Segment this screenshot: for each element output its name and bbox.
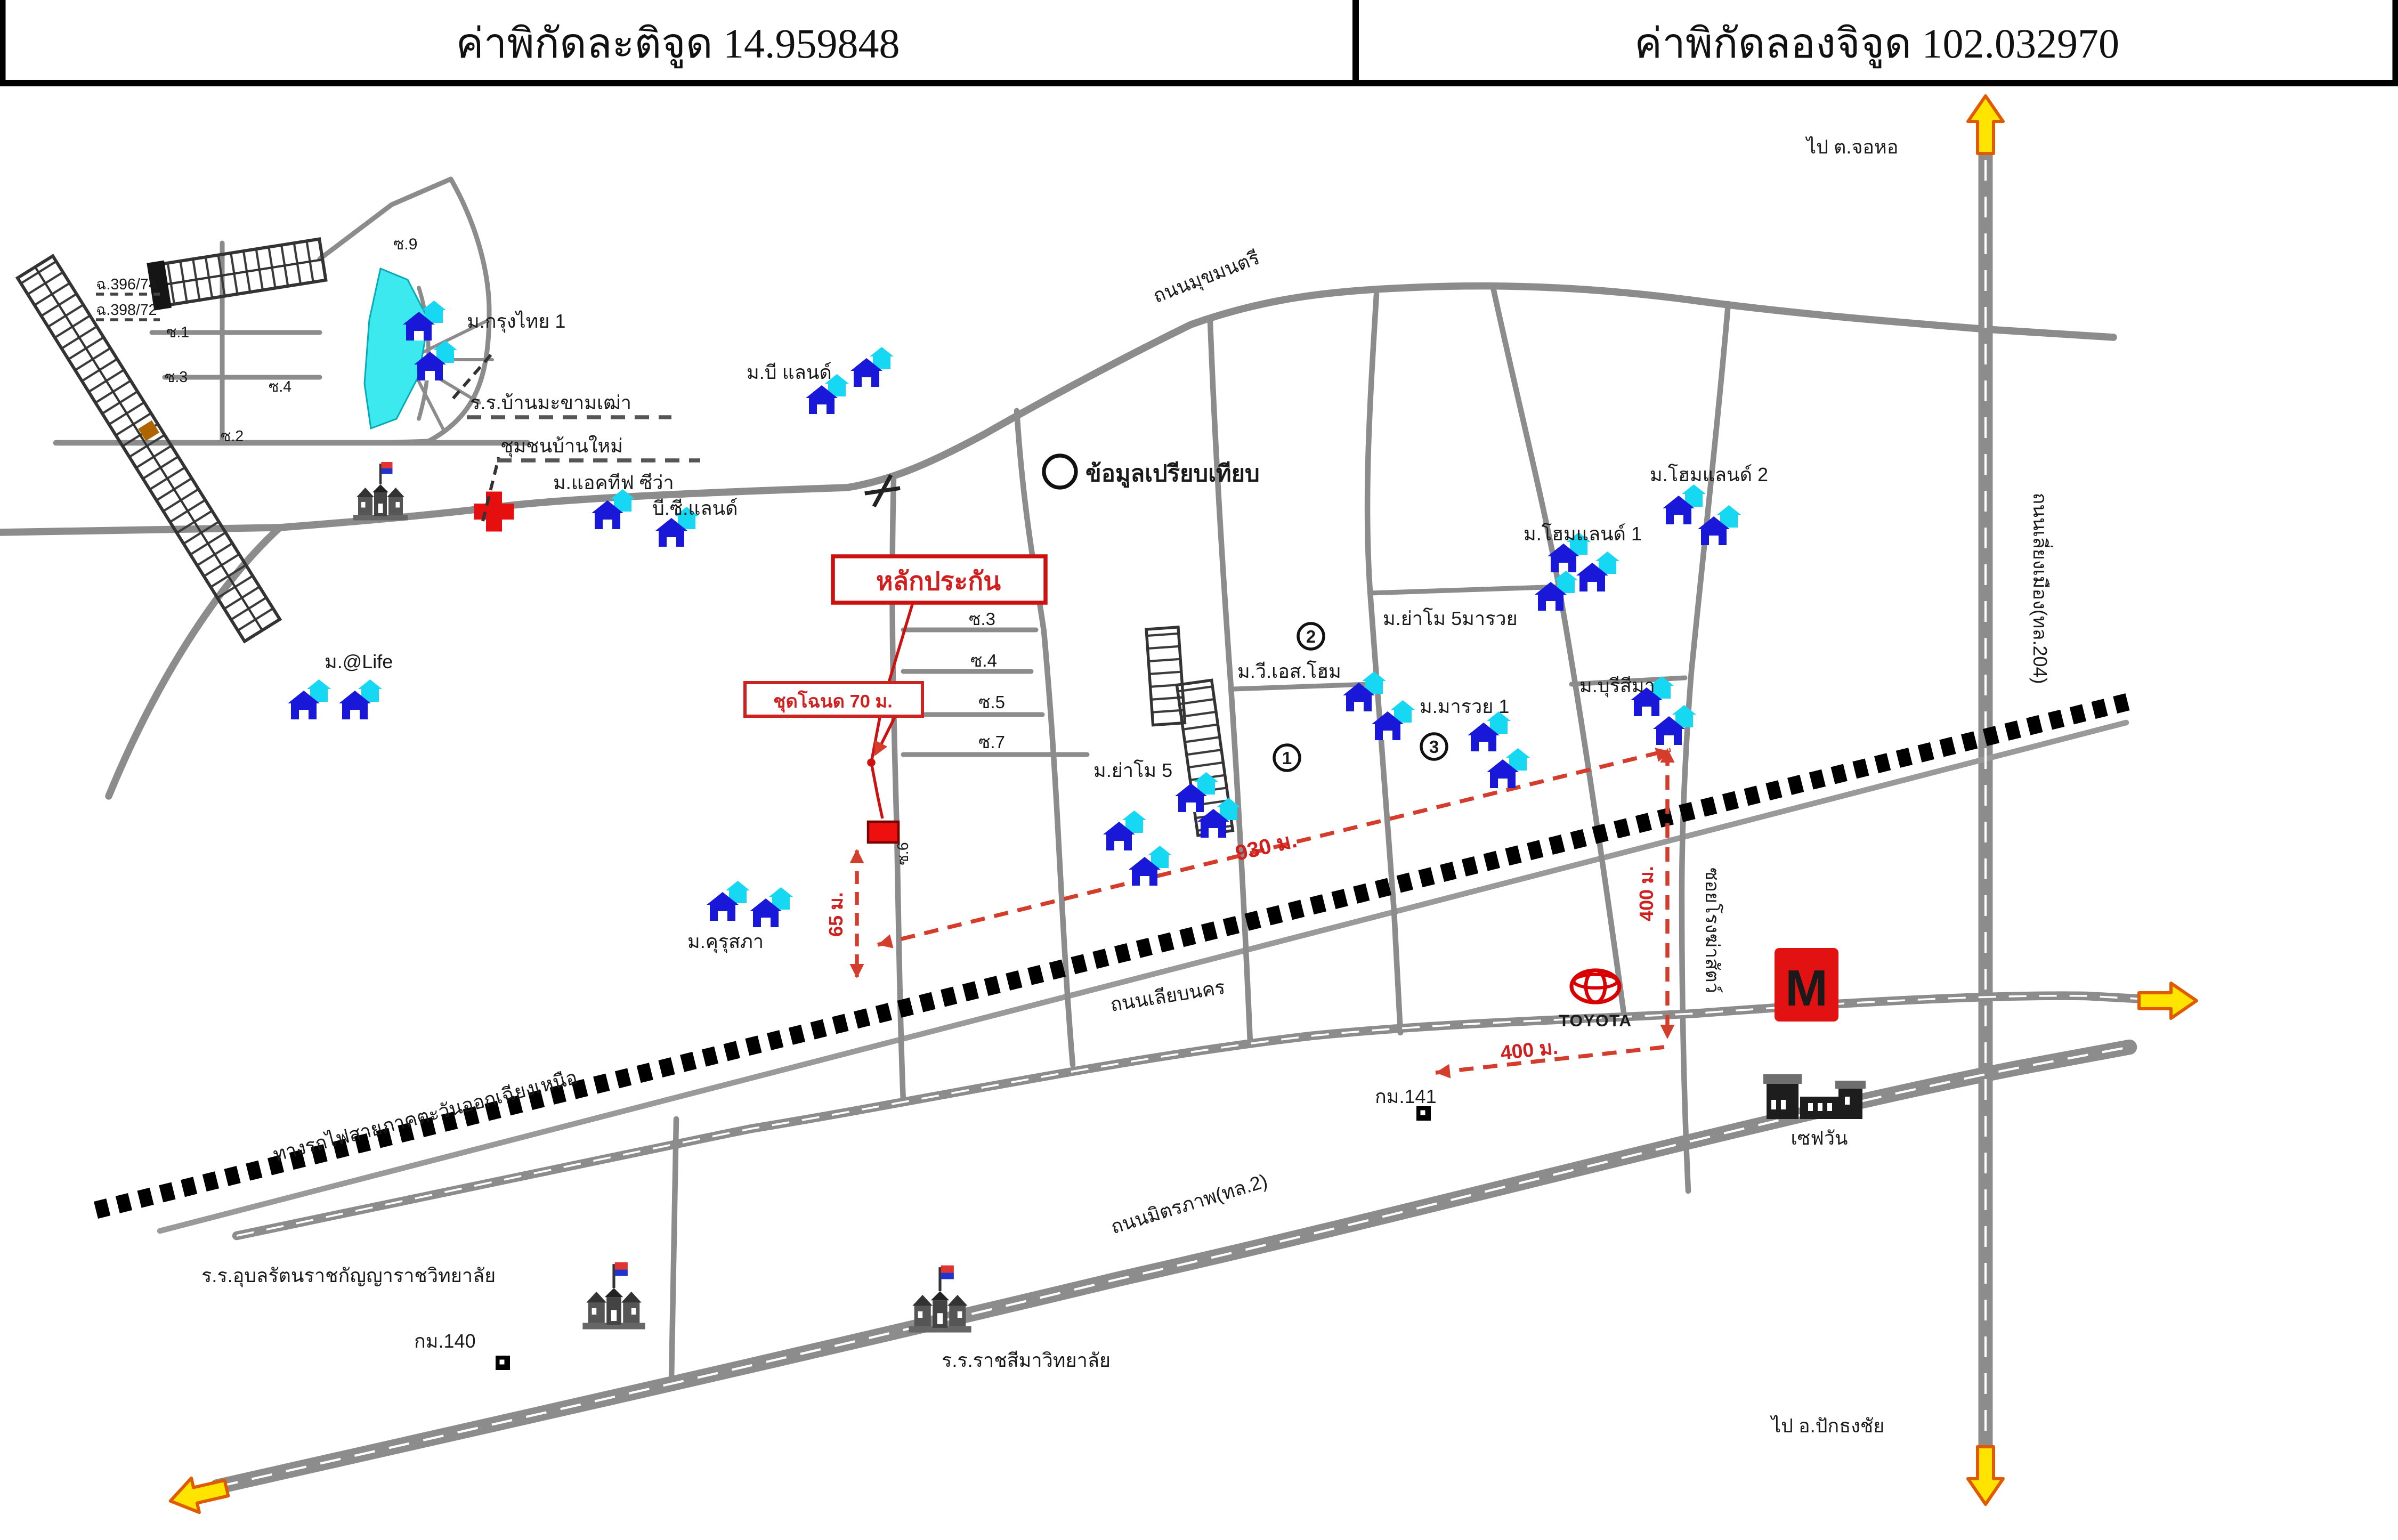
soi-3b: ซ.3 bbox=[165, 369, 188, 386]
village-kurusapha: ม.คุรุสภา bbox=[687, 930, 764, 953]
railway-label: ทางรถไฟสายภาคตะวันออกเฉียงเหนือ bbox=[271, 1066, 579, 1165]
soi-3: ซ.3 bbox=[969, 609, 995, 629]
map-page: ค่าพิกัดละติจูด 14.959848 ค่าพิกัดลองจิจ… bbox=[0, 0, 2398, 1539]
village-b-land: ม.บี แลนด์ bbox=[747, 361, 832, 383]
circled-3: 3 bbox=[1429, 737, 1439, 757]
village-marui1: ม.มารวย 1 bbox=[1420, 695, 1509, 717]
the-mall-icon: M bbox=[1775, 948, 1838, 1022]
bypass-road-label: ถนนเลี่ยงเมือง(ทล.204) bbox=[2029, 492, 2053, 684]
village-yamo5-marui: ม.ย่าโม 5มารวย bbox=[1383, 607, 1518, 629]
dist-400v-label: 400 ม. bbox=[1635, 866, 1657, 921]
school2-icon bbox=[909, 1266, 971, 1333]
school1-icon bbox=[582, 1262, 645, 1330]
plot-deed1: ฉ.396/74 bbox=[96, 276, 157, 293]
circled-2: 2 bbox=[1306, 627, 1316, 646]
soi-6: ซ.6 bbox=[895, 842, 912, 865]
km141-label: กม.141 bbox=[1375, 1085, 1437, 1107]
longitude-value: ค่าพิกัดลองจิจูด 102.032970 bbox=[1634, 20, 2119, 68]
comparison-label: ข้อมูลเปรียบเทียบ bbox=[1085, 461, 1260, 488]
collateral-label: หลักประกัน bbox=[876, 568, 1001, 596]
arrow-east-icon bbox=[2139, 983, 2197, 1018]
to-johor-label: ไป ต.จอหอ bbox=[1805, 136, 1898, 158]
mukmontri-road bbox=[0, 286, 2113, 532]
school-icon bbox=[353, 462, 408, 521]
arrow-south-icon bbox=[1968, 1447, 2003, 1504]
village-burisima: ม.บุรีสีมา bbox=[1579, 675, 1655, 698]
dist-400h-label: 400 ม. bbox=[1500, 1036, 1559, 1064]
hospital-cross-icon bbox=[474, 492, 514, 532]
village-krungthai1: ม.กรุงไทย 1 bbox=[467, 310, 565, 333]
header-row: ค่าพิกัดละติจูด 14.959848 ค่าพิกัดลองจิจ… bbox=[3, 0, 2396, 83]
save-one-building bbox=[1763, 1074, 1866, 1119]
road-centerlines bbox=[217, 160, 2145, 1487]
soi-4b: ซ.4 bbox=[269, 378, 291, 395]
soi-5: ซ.5 bbox=[978, 692, 1005, 712]
soi-9: ซ.9 bbox=[393, 236, 417, 253]
soi-4: ซ.4 bbox=[970, 651, 997, 670]
west-branch-road bbox=[109, 528, 280, 796]
village-banmakham: ร.ร.บ้านมะขามเฒ่า bbox=[470, 392, 631, 414]
village-at-life: ม.@Life bbox=[325, 651, 393, 672]
save-one-label: เซฟวัน bbox=[1791, 1127, 1848, 1149]
dist-930-label: 930 ม. bbox=[1233, 828, 1299, 865]
road-network bbox=[0, 153, 2145, 1487]
village-yamo5: ม.ย่าโม 5 bbox=[1093, 759, 1172, 781]
village-homeland1: ม.โฮมแลนด์ 1 bbox=[1524, 523, 1642, 545]
school2-label: ร.ร.ราชสีมาวิทยาลัย bbox=[942, 1349, 1111, 1371]
school1-label: ร.ร.อุบลรัตนราชกัญญาราชวิทยาลัย bbox=[201, 1265, 496, 1287]
comparison-legend: ข้อมูลเปรียบเทียบ bbox=[1044, 456, 1260, 488]
deed-note-callout: ชุดโฉนด 70 ม. bbox=[745, 683, 922, 716]
km140-label: กม.140 bbox=[414, 1330, 476, 1352]
arrow-southwest-icon bbox=[166, 1471, 230, 1518]
circled-1: 1 bbox=[1282, 748, 1292, 768]
toyota-label: TOYOTA bbox=[1559, 1011, 1632, 1030]
collateral-callout: หลักประกัน bbox=[833, 556, 1046, 603]
plot-deed2: ฉ.398/72 bbox=[96, 302, 157, 319]
soi-2: ซ.2 bbox=[221, 428, 244, 445]
deed-note-label: ชุดโฉนด 70 ม. bbox=[773, 690, 893, 713]
village-vs-home: ม.วี.เอส.โฮม bbox=[1237, 660, 1341, 682]
latitude-value: ค่าพิกัดละติจูด 14.959848 bbox=[456, 20, 900, 68]
collateral-property-marker bbox=[868, 822, 898, 842]
dist-65-label: 65 ม. bbox=[825, 892, 847, 937]
mittraphap-road-label: ถนนมิตรภาพ(ทล.2) bbox=[1108, 1170, 1270, 1238]
village-banmai: ชุมชนบ้านใหม่ bbox=[500, 435, 623, 458]
soi-7: ซ.7 bbox=[978, 732, 1005, 752]
location-map: ค่าพิกัดละติจูด 14.959848 ค่าพิกัดลองจิจ… bbox=[0, 0, 2398, 1539]
soi-slaughterhouse-label: ซอยโรงฆ่าสัตว์ bbox=[1702, 868, 1723, 993]
arrow-north-icon bbox=[1968, 96, 2003, 153]
village-active-siva: ม.แอคทีฟ ซีว่า bbox=[553, 472, 674, 493]
mall-m-glyph: M bbox=[1785, 960, 1828, 1017]
mukmontri-road-label: ถนนมุขมนตรี bbox=[1150, 246, 1263, 308]
village-bc-land: บี.ซี.แลนด์ bbox=[652, 497, 738, 519]
soi-1: ซ.1 bbox=[166, 324, 189, 341]
to-pakthongchai-label: ไป อ.ปักธงชัย bbox=[1770, 1415, 1884, 1437]
village-homeland2: ม.โฮมแลนด์ 2 bbox=[1650, 464, 1768, 485]
